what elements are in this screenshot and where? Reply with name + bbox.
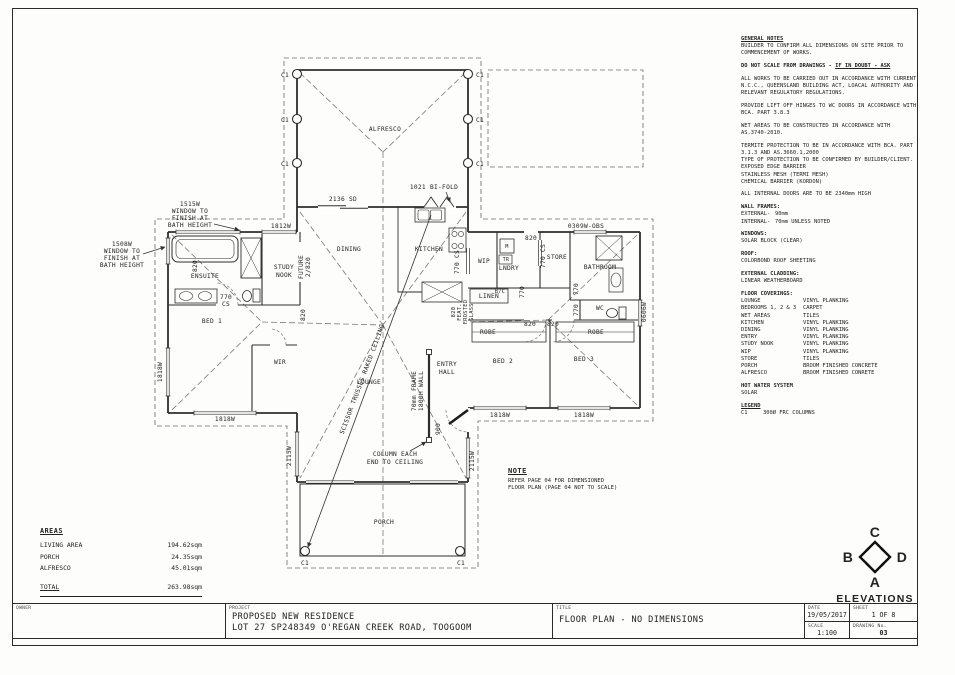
plan-label: COLUMN EACH (373, 451, 417, 458)
plan-label: BED 2 (493, 358, 513, 365)
pantry-shelves-icon (422, 282, 462, 302)
plan-label: 0606W (641, 302, 648, 322)
window-lounge-2115w (295, 432, 300, 476)
interior-walls (168, 232, 640, 443)
drawing-no-value: 03 (850, 630, 917, 637)
title-block-right: DATE 19/05/2017 SHEET 1 OF 8 SCALE 1:100… (805, 604, 917, 638)
plan-label: 770 (573, 304, 580, 316)
window-porch-right (410, 480, 458, 484)
elevation-d: D (897, 549, 907, 565)
window-0309w-obs (574, 230, 606, 235)
note-box-title: NOTE (508, 468, 617, 475)
window-bed1-side (166, 348, 171, 396)
drawing-title: FLOOR PLAN - NO DIMENSIONS (553, 615, 804, 626)
date-cell: DATE 19/05/2017 (805, 604, 849, 621)
plan-label: 0309W-OBS (568, 223, 604, 230)
plan-label: 820 (300, 309, 307, 321)
areas-row: PORCH24.35sqm (40, 552, 202, 564)
plan-label: FUTURE (298, 255, 305, 279)
elevation-b: B (843, 549, 853, 565)
plan-label: ENSUITE (191, 273, 219, 280)
c1-column (464, 115, 473, 124)
areas-total-label: TOTAL (40, 582, 59, 593)
note-box: NOTE REFER PAGE 04 FOR DIMENSIONEDFLOOR … (508, 468, 617, 492)
c1-column (301, 547, 310, 556)
plan-label: TR (503, 257, 509, 263)
cooktop-icon (449, 228, 466, 252)
c1-column (293, 115, 302, 124)
annotation-arrows (143, 192, 450, 547)
bathroom-vanity-icon (609, 268, 623, 292)
windows (166, 197, 643, 484)
plan-label: WINDOW TO (172, 208, 208, 215)
plan-label: 1818W (574, 412, 594, 419)
areas-rows: LIVING AREA194.62sqmPORCH24.35sqmALFRESC… (40, 540, 202, 575)
plan-label: 2/820 (305, 257, 312, 277)
plan-label: LNDRY (499, 265, 519, 272)
plan-label: 770 (519, 286, 526, 298)
plan-label: 770 CS (454, 250, 461, 274)
bathroom-shower-icon (596, 236, 622, 260)
plan-label: GLASS (469, 303, 475, 321)
areas-total-value: 263.98sqm (167, 582, 202, 593)
window-bed2-bottom (474, 406, 526, 411)
title-label: TITLE (553, 604, 804, 612)
wc-toilet-icon (607, 307, 627, 319)
plan-label: 900 (435, 423, 442, 435)
plan-label: C1 (457, 560, 465, 567)
plan-label: CS (222, 301, 230, 308)
plan-label: 2115W (469, 451, 476, 471)
ensuite-shower-icon (241, 238, 261, 278)
plan-label: 2136 SD (329, 196, 357, 203)
project-label: PROJECT (226, 604, 552, 612)
bath-icon (172, 236, 238, 262)
owner-label: OWNER (13, 604, 225, 612)
window-bed3-bottom (558, 406, 610, 411)
plan-label: 1800H WALL (418, 371, 425, 411)
plan-label: BED 3 (574, 356, 594, 363)
plan-label: C1 (281, 72, 289, 79)
plan-label: ROBE (480, 329, 496, 336)
plan-label: 1818W (490, 412, 510, 419)
c1-column (464, 70, 473, 79)
title-block: OWNER PROJECT PROPOSED NEW RESIDENCE LOT… (12, 603, 918, 639)
plan-label: 1508W (112, 241, 132, 248)
window-bed1-bottom (194, 411, 256, 416)
plan-label: WINDOW TO (104, 248, 140, 255)
c1-column (456, 547, 465, 556)
plan-label: ALFRESCO (369, 126, 401, 133)
door-820-opening (524, 230, 538, 234)
c1-column (293, 159, 302, 168)
c1-column (293, 70, 302, 79)
entry-door-leaf (449, 410, 468, 424)
areas-row: LIVING AREA194.62sqm (40, 540, 202, 552)
plan-label: 820 (547, 321, 559, 328)
plan-label: 1818W (215, 416, 235, 423)
areas-table: AREAS LIVING AREA194.62sqmPORCH24.35sqmA… (40, 527, 202, 597)
plan-label: BATHROOM (584, 264, 616, 271)
plan-label: 770 (220, 294, 232, 301)
scale-cell: SCALE 1:100 (805, 621, 849, 638)
window-1508w (166, 238, 171, 264)
plan-label: DINING (337, 246, 361, 253)
plan-label: 1812W (271, 223, 291, 230)
plan-label: 70mm FRAME (411, 371, 418, 411)
plan-label: KITCHEN (415, 246, 443, 253)
plan-label: 1515W (180, 201, 200, 208)
ensuite-vanity-icon (175, 289, 217, 303)
project-name: PROPOSED NEW RESIDENCE (226, 612, 552, 623)
title-cell: TITLE FLOOR PLAN - NO DIMENSIONS (553, 604, 805, 638)
plan-label: NOOK (276, 272, 292, 279)
elevation-compass: C B D A ELEVATIONS (836, 524, 914, 605)
date-value: 19/05/2017 (805, 612, 849, 619)
plan-label: 2115W (286, 446, 293, 466)
plan-label: BATH HEIGHT (168, 222, 212, 229)
plan-label: BED 1 (202, 318, 222, 325)
doors (216, 230, 574, 432)
plan-label: FINISH AT (104, 255, 140, 262)
elevation-a: A (870, 574, 880, 590)
plan-label: 1818W (157, 362, 164, 382)
areas-total-row: TOTAL 263.98sqm (40, 582, 202, 597)
sliding-door-2136sd (318, 205, 368, 210)
project-cell: PROJECT PROPOSED NEW RESIDENCE LOT 27 SP… (226, 604, 553, 638)
owner-cell: OWNER (13, 604, 226, 638)
plan-label: 1021 BI-FOLD (410, 184, 458, 191)
plan-label: PORCH (374, 519, 394, 526)
window-1812w (262, 230, 296, 235)
notes-column: GENERAL NOTESBUILDER TO CONFIRM ALL DIME… (741, 36, 917, 423)
plan-label: WC (596, 305, 604, 312)
plan-label: M (505, 244, 508, 250)
plan-labels: ALFRESCOC1C1C1C1C1C12136 SD1021 BI-FOLD1… (100, 72, 648, 567)
plan-label: STUDY (274, 264, 294, 271)
plan-label: C1 (476, 117, 484, 124)
plan-label: BATH HEIGHT (100, 262, 144, 269)
plan-label: 820 (524, 321, 536, 328)
sheet-cell: SHEET 1 OF 8 (849, 604, 917, 621)
scale-value: 1:100 (805, 630, 849, 637)
sheet-value: 1 OF 8 (850, 612, 917, 619)
areas-row: ALFRESCO45.01sqm (40, 563, 202, 575)
plan-label: 820 (525, 235, 537, 242)
plan-label: C1 (476, 161, 484, 168)
plan-label: HALL (439, 369, 455, 376)
compass-chevron-icons (860, 542, 890, 572)
drawing-no-cell: DRAWING No. 03 (849, 621, 917, 638)
plan-label: ROBE (588, 329, 604, 336)
plan-label: WIR (274, 359, 286, 366)
chevron-right-icon (881, 548, 890, 566)
plan-label: C1 (281, 117, 289, 124)
note-box-lines: REFER PAGE 04 FOR DIMENSIONEDFLOOR PLAN … (508, 478, 617, 492)
plan-label: 770 (573, 283, 580, 295)
plan-label: STORE (547, 254, 567, 261)
plan-label: C1 (301, 560, 309, 567)
ensuite-toilet-icon (243, 289, 261, 302)
window-1515w (176, 230, 240, 235)
plan-label: C1 (476, 72, 484, 79)
plan-label: ENTRY (437, 361, 457, 368)
drawing-sheet: ALFRESCOC1C1C1C1C1C12136 SD1021 BI-FOLD1… (0, 0, 955, 675)
plan-label: WIP (478, 258, 490, 265)
window-porch-left (306, 480, 354, 484)
plan-label: LINEN (479, 293, 499, 300)
chevron-left-icon (860, 548, 869, 566)
project-address: LOT 27 SP248349 O'REGAN CREEK ROAD, TOOG… (226, 623, 552, 634)
kitchen-sink-icon (431, 210, 442, 220)
plan-label: C1 (281, 161, 289, 168)
elevation-c: C (870, 524, 880, 540)
c1-column (464, 159, 473, 168)
areas-title: AREAS (40, 527, 202, 535)
plan-label: FINISH AT (172, 215, 208, 222)
plan-label: END TO CEILING (367, 459, 423, 466)
plan-label: 820 (192, 260, 199, 272)
future-roof-dashed-rect (488, 70, 643, 167)
